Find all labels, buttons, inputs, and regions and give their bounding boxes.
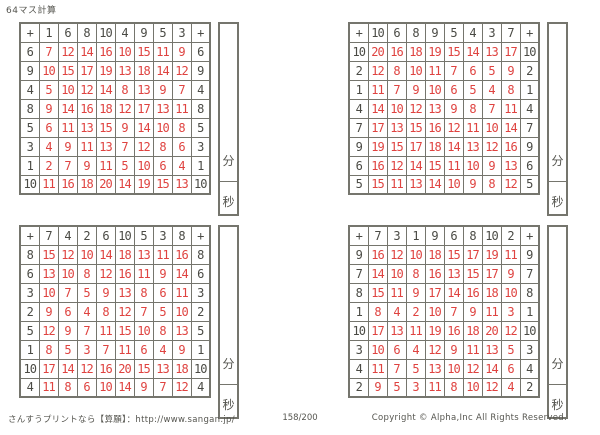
- operand-cell: 9: [425, 23, 444, 42]
- answer-cell: 13: [172, 321, 191, 340]
- answer-cell: 10: [134, 321, 153, 340]
- grid-group-bottom-left: +742610538+81512101418131116861310812161…: [19, 225, 239, 419]
- answer-cell: 3: [501, 302, 520, 321]
- operand-cell: 7: [39, 226, 58, 245]
- answer-cell: 11: [406, 321, 425, 340]
- answer-cell: 11: [368, 359, 387, 378]
- answer-cell: 12: [58, 42, 77, 61]
- operand-cell: +: [20, 23, 39, 42]
- answer-cell: 12: [134, 137, 153, 156]
- minutes-label: 分: [222, 152, 234, 169]
- answer-cell: 3: [406, 378, 425, 397]
- answer-cell: 4: [172, 156, 191, 175]
- answer-cell: 16: [425, 118, 444, 137]
- answer-cell: 11: [387, 175, 406, 194]
- operand-cell: 2: [520, 61, 539, 80]
- answer-cell: 16: [368, 156, 387, 175]
- answer-cell: 10: [77, 245, 96, 264]
- operand-cell: 8: [172, 226, 191, 245]
- answer-cell: 8: [58, 378, 77, 397]
- operand-cell: 3: [153, 226, 172, 245]
- answer-cell: 9: [58, 321, 77, 340]
- operand-cell: 5: [20, 321, 39, 340]
- table-row: 31064129111353: [349, 340, 539, 359]
- answer-cell: 10: [482, 118, 501, 137]
- operand-cell: 10: [191, 175, 210, 194]
- answer-cell: 15: [387, 137, 406, 156]
- operand-cell: 4: [520, 99, 539, 118]
- answer-cell: 10: [96, 378, 115, 397]
- answer-cell: 11: [482, 302, 501, 321]
- operand-cell: 8: [191, 245, 210, 264]
- answer-cell: 12: [368, 61, 387, 80]
- answer-cell: 15: [463, 264, 482, 283]
- grid-group-top-right: +106895437+10201618191514131710212810117…: [348, 22, 568, 216]
- operand-cell: +: [349, 226, 368, 245]
- operand-cell: 10: [349, 321, 368, 340]
- time-box-2: 分 秒: [547, 22, 568, 216]
- table-row: 61612141511109136: [349, 156, 539, 175]
- answer-cell: 8: [77, 264, 96, 283]
- answer-cell: 11: [39, 175, 58, 194]
- answer-cell: 11: [134, 264, 153, 283]
- answer-cell: 13: [134, 80, 153, 99]
- answer-cell: 10: [134, 156, 153, 175]
- table-row: 5151113141098125: [349, 175, 539, 194]
- answer-cell: 9: [463, 302, 482, 321]
- answer-cell: 6: [153, 283, 172, 302]
- operand-cell: 1: [520, 80, 539, 99]
- table-row: 296481275102: [20, 302, 210, 321]
- answer-cell: 17: [463, 245, 482, 264]
- answer-cell: 13: [482, 340, 501, 359]
- operand-cell: 4: [191, 80, 210, 99]
- answer-cell: 16: [425, 264, 444, 283]
- operand-cell: 8: [20, 99, 39, 118]
- answer-cell: 15: [134, 359, 153, 378]
- answer-cell: 9: [96, 283, 115, 302]
- answer-cell: 13: [115, 283, 134, 302]
- operand-cell: 3: [349, 340, 368, 359]
- answer-cell: 9: [153, 264, 172, 283]
- answer-cell: 11: [153, 245, 172, 264]
- answer-cell: 7: [115, 137, 134, 156]
- answer-cell: 17: [425, 283, 444, 302]
- answer-cell: 8: [387, 61, 406, 80]
- answer-cell: 13: [39, 264, 58, 283]
- answer-cell: 5: [77, 283, 96, 302]
- answer-cell: 9: [444, 99, 463, 118]
- answer-cell: 5: [406, 359, 425, 378]
- answer-cell: 10: [115, 42, 134, 61]
- answer-cell: 18: [425, 245, 444, 264]
- answer-cell: 7: [58, 156, 77, 175]
- answer-cell: 12: [115, 302, 134, 321]
- operand-cell: 10: [520, 321, 539, 340]
- operand-cell: 8: [520, 283, 539, 302]
- table-row: 18537116491: [20, 340, 210, 359]
- answer-cell: 9: [463, 175, 482, 194]
- answer-cell: 12: [77, 359, 96, 378]
- answer-cell: 6: [58, 302, 77, 321]
- answer-cell: 4: [501, 378, 520, 397]
- operand-cell: 7: [368, 226, 387, 245]
- answer-cell: 10: [39, 283, 58, 302]
- operand-cell: 7: [349, 118, 368, 137]
- answer-cell: 6: [463, 61, 482, 80]
- seconds-label: 秒: [551, 193, 563, 210]
- answer-cell: 7: [77, 321, 96, 340]
- answer-cell: 12: [501, 175, 520, 194]
- table-row: 916121018151719119: [349, 245, 539, 264]
- answer-cell: 6: [501, 359, 520, 378]
- answer-cell: 15: [425, 156, 444, 175]
- answer-cell: 14: [96, 245, 115, 264]
- answer-cell: 11: [39, 378, 58, 397]
- operand-cell: 8: [191, 99, 210, 118]
- answer-cell: 15: [115, 321, 134, 340]
- operand-cell: 10: [115, 226, 134, 245]
- operand-cell: 5: [191, 118, 210, 137]
- minutes-label: 分: [551, 152, 563, 169]
- operand-cell: 6: [191, 264, 210, 283]
- answer-cell: 16: [172, 245, 191, 264]
- table-row: 910151719131814129: [20, 61, 210, 80]
- answer-cell: 5: [387, 378, 406, 397]
- answer-cell: 11: [58, 118, 77, 137]
- answer-cell: 14: [115, 175, 134, 194]
- answer-cell: 12: [444, 118, 463, 137]
- table-row: 111791065481: [349, 80, 539, 99]
- answer-cell: 14: [58, 99, 77, 118]
- answer-cell: 15: [153, 175, 172, 194]
- header-row: +106895437+: [349, 23, 539, 42]
- operand-cell: 1: [349, 302, 368, 321]
- answer-cell: 7: [172, 80, 191, 99]
- answer-cell: 18: [482, 283, 501, 302]
- answer-cell: 6: [172, 137, 191, 156]
- operand-cell: 5: [520, 175, 539, 194]
- operand-cell: 10: [368, 23, 387, 42]
- answer-cell: 12: [463, 359, 482, 378]
- minutes-label: 分: [222, 355, 234, 372]
- answer-cell: 13: [444, 264, 463, 283]
- table-row: 10111618201419151310: [20, 175, 210, 194]
- operand-cell: 4: [20, 378, 39, 397]
- answer-cell: 17: [77, 61, 96, 80]
- answer-cell: 10: [463, 156, 482, 175]
- answer-cell: 5: [501, 340, 520, 359]
- table-row: 3107591386113: [20, 283, 210, 302]
- table-row: 717131516121110147: [349, 118, 539, 137]
- answer-cell: 5: [58, 340, 77, 359]
- answer-cell: 7: [58, 283, 77, 302]
- answer-cell: 12: [115, 99, 134, 118]
- answer-cell: 12: [172, 61, 191, 80]
- answer-cell: 16: [444, 321, 463, 340]
- operand-cell: 3: [520, 340, 539, 359]
- answer-cell: 7: [387, 359, 406, 378]
- operand-cell: 4: [349, 99, 368, 118]
- operand-cell: 8: [463, 226, 482, 245]
- answer-cell: 13: [406, 175, 425, 194]
- operand-cell: 9: [191, 61, 210, 80]
- answer-cell: 16: [77, 99, 96, 118]
- operand-cell: 4: [520, 359, 539, 378]
- answer-cell: 7: [39, 42, 58, 61]
- answer-cell: 14: [134, 118, 153, 137]
- answer-cell: 16: [368, 245, 387, 264]
- answer-cell: 14: [77, 42, 96, 61]
- answer-cell: 15: [444, 42, 463, 61]
- answer-cell: 10: [425, 80, 444, 99]
- answer-cell: 12: [39, 321, 58, 340]
- operand-cell: 1: [349, 80, 368, 99]
- answer-cell: 14: [444, 283, 463, 302]
- operand-cell: 10: [20, 359, 39, 378]
- answer-cell: 7: [387, 80, 406, 99]
- answer-cell: 15: [368, 283, 387, 302]
- answer-cell: 5: [153, 302, 172, 321]
- answer-cell: 4: [153, 340, 172, 359]
- answer-cell: 8: [406, 264, 425, 283]
- operand-cell: 6: [20, 42, 39, 61]
- grid-group-top-left: +168104953+67121416101511969101517191318…: [19, 22, 239, 216]
- table-row: 919151718141312169: [349, 137, 539, 156]
- answer-cell: 13: [77, 118, 96, 137]
- answer-cell: 10: [368, 340, 387, 359]
- answer-cell: 12: [482, 378, 501, 397]
- answer-cell: 15: [96, 118, 115, 137]
- operand-cell: 2: [520, 378, 539, 397]
- answer-cell: 13: [172, 175, 191, 194]
- answer-cell: 14: [463, 42, 482, 61]
- page-title: 64マス計算: [6, 3, 56, 16]
- answer-cell: 18: [134, 61, 153, 80]
- answer-cell: 11: [368, 80, 387, 99]
- answer-cell: 13: [387, 118, 406, 137]
- table-row: 7141081613151797: [349, 264, 539, 283]
- answer-cell: 13: [153, 99, 172, 118]
- time-box-4: 分 秒: [547, 225, 568, 419]
- operand-cell: 5: [153, 23, 172, 42]
- answer-cell: 9: [368, 378, 387, 397]
- answer-cell: 10: [463, 378, 482, 397]
- answer-cell: 14: [368, 99, 387, 118]
- answer-cell: 15: [406, 118, 425, 137]
- answer-cell: 8: [153, 321, 172, 340]
- minutes-box: 分: [549, 227, 566, 385]
- operand-cell: 10: [20, 175, 39, 194]
- answer-cell: 11: [387, 283, 406, 302]
- operand-cell: +: [520, 23, 539, 42]
- operand-cell: 1: [191, 340, 210, 359]
- answer-cell: 9: [482, 156, 501, 175]
- masu-grid-1: +168104953+67121416101511969101517191318…: [19, 22, 211, 195]
- answer-cell: 4: [77, 302, 96, 321]
- answer-cell: 9: [39, 99, 58, 118]
- operand-cell: 10: [191, 359, 210, 378]
- answer-cell: 8: [153, 137, 172, 156]
- operand-cell: 9: [520, 245, 539, 264]
- table-row: 184210791131: [349, 302, 539, 321]
- answer-cell: 9: [153, 80, 172, 99]
- operand-cell: 3: [191, 137, 210, 156]
- operand-cell: 4: [349, 359, 368, 378]
- answer-cell: 9: [39, 302, 58, 321]
- answer-cell: 10: [58, 80, 77, 99]
- table-row: 89141618121713118: [20, 99, 210, 118]
- time-box-1: 分 秒: [218, 22, 239, 216]
- answer-cell: 13: [96, 137, 115, 156]
- answer-cell: 2: [406, 302, 425, 321]
- operand-cell: 2: [20, 302, 39, 321]
- answer-cell: 9: [172, 42, 191, 61]
- table-row: 411751310121464: [349, 359, 539, 378]
- answer-cell: 13: [501, 156, 520, 175]
- answer-cell: 16: [387, 42, 406, 61]
- answer-cell: 12: [58, 245, 77, 264]
- answer-cell: 10: [406, 245, 425, 264]
- answer-cell: 11: [77, 137, 96, 156]
- answer-cell: 7: [153, 378, 172, 397]
- answer-cell: 20: [368, 42, 387, 61]
- seconds-label: 秒: [551, 396, 563, 413]
- operand-cell: 3: [387, 226, 406, 245]
- operand-cell: 5: [20, 118, 39, 137]
- answer-cell: 9: [444, 340, 463, 359]
- operand-cell: 7: [520, 264, 539, 283]
- answer-cell: 20: [482, 321, 501, 340]
- answer-cell: 15: [368, 175, 387, 194]
- answer-cell: 8: [134, 283, 153, 302]
- answer-cell: 13: [115, 61, 134, 80]
- answer-cell: 13: [134, 245, 153, 264]
- answer-cell: 12: [501, 321, 520, 340]
- operand-cell: 10: [349, 42, 368, 61]
- operand-cell: +: [191, 226, 210, 245]
- answer-cell: 9: [58, 137, 77, 156]
- answer-cell: 5: [482, 61, 501, 80]
- answer-cell: 10: [387, 264, 406, 283]
- answer-cell: 17: [406, 137, 425, 156]
- operand-cell: 8: [20, 245, 39, 264]
- header-row: +742610538+: [20, 226, 210, 245]
- masu-grid-2: +106895437+10201618191514131710212810117…: [348, 22, 540, 195]
- answer-cell: 14: [368, 264, 387, 283]
- table-row: 2953118101242: [349, 378, 539, 397]
- operand-cell: 4: [20, 80, 39, 99]
- operand-cell: 6: [349, 156, 368, 175]
- answer-cell: 17: [134, 99, 153, 118]
- answer-cell: 12: [387, 156, 406, 175]
- operand-cell: 6: [520, 156, 539, 175]
- grid-group-bottom-right: +731968102+91612101815171911971410816131…: [348, 225, 568, 419]
- answer-cell: 17: [368, 118, 387, 137]
- answer-cell: 14: [425, 175, 444, 194]
- answer-cell: 7: [134, 302, 153, 321]
- operand-cell: 8: [349, 283, 368, 302]
- answer-cell: 11: [96, 321, 115, 340]
- operand-cell: 6: [20, 264, 39, 283]
- seconds-label: 秒: [222, 396, 234, 413]
- answer-cell: 9: [115, 118, 134, 137]
- operand-cell: 6: [58, 23, 77, 42]
- operand-cell: 2: [501, 226, 520, 245]
- answer-cell: 16: [463, 283, 482, 302]
- answer-cell: 5: [39, 80, 58, 99]
- operand-cell: 6: [387, 23, 406, 42]
- answer-cell: 8: [96, 302, 115, 321]
- answer-cell: 18: [172, 359, 191, 378]
- answer-cell: 12: [406, 99, 425, 118]
- minutes-box: 分: [220, 24, 237, 182]
- operand-cell: 1: [39, 23, 58, 42]
- answer-cell: 18: [96, 99, 115, 118]
- operand-cell: 5: [444, 23, 463, 42]
- answer-cell: 11: [444, 156, 463, 175]
- answer-cell: 6: [444, 80, 463, 99]
- footer-copyright: Copyright © Alpha,Inc All Rights Reserve…: [372, 413, 567, 423]
- operand-cell: 5: [349, 175, 368, 194]
- answer-cell: 7: [482, 99, 501, 118]
- operand-cell: 3: [20, 283, 39, 302]
- answer-cell: 10: [153, 118, 172, 137]
- answer-cell: 9: [501, 264, 520, 283]
- operand-cell: 10: [96, 23, 115, 42]
- operand-cell: 8: [77, 23, 96, 42]
- operand-cell: 1: [520, 302, 539, 321]
- answer-cell: 10: [444, 175, 463, 194]
- header-row: +731968102+: [349, 226, 539, 245]
- answer-cell: 14: [501, 118, 520, 137]
- answer-cell: 16: [501, 137, 520, 156]
- answer-cell: 9: [501, 61, 520, 80]
- answer-cell: 9: [406, 80, 425, 99]
- masu-grid-3: +742610538+81512101418131116861310812161…: [19, 225, 211, 398]
- table-row: 10201618191514131710: [349, 42, 539, 61]
- answer-cell: 15: [444, 245, 463, 264]
- operand-cell: 10: [520, 42, 539, 61]
- table-row: 561113159141085: [20, 118, 210, 137]
- answer-cell: 13: [387, 321, 406, 340]
- answer-cell: 13: [463, 137, 482, 156]
- answer-cell: 10: [58, 264, 77, 283]
- answer-cell: 8: [444, 378, 463, 397]
- answer-cell: 13: [482, 42, 501, 61]
- answer-cell: 5: [115, 156, 134, 175]
- operand-cell: 8: [406, 23, 425, 42]
- answer-cell: 13: [153, 359, 172, 378]
- answer-cell: 12: [96, 264, 115, 283]
- operand-cell: +: [20, 226, 39, 245]
- operand-cell: 10: [482, 226, 501, 245]
- operand-cell: 3: [482, 23, 501, 42]
- answer-cell: 6: [387, 340, 406, 359]
- answer-cell: 18: [425, 137, 444, 156]
- operand-cell: 9: [349, 137, 368, 156]
- answer-cell: 16: [115, 264, 134, 283]
- answer-cell: 11: [96, 156, 115, 175]
- operand-cell: +: [349, 23, 368, 42]
- answer-cell: 8: [39, 340, 58, 359]
- answer-cell: 11: [463, 340, 482, 359]
- header-row: +168104953+: [20, 23, 210, 42]
- answer-cell: 6: [134, 340, 153, 359]
- operand-cell: 7: [501, 23, 520, 42]
- answer-cell: 9: [406, 283, 425, 302]
- answer-cell: 11: [115, 340, 134, 359]
